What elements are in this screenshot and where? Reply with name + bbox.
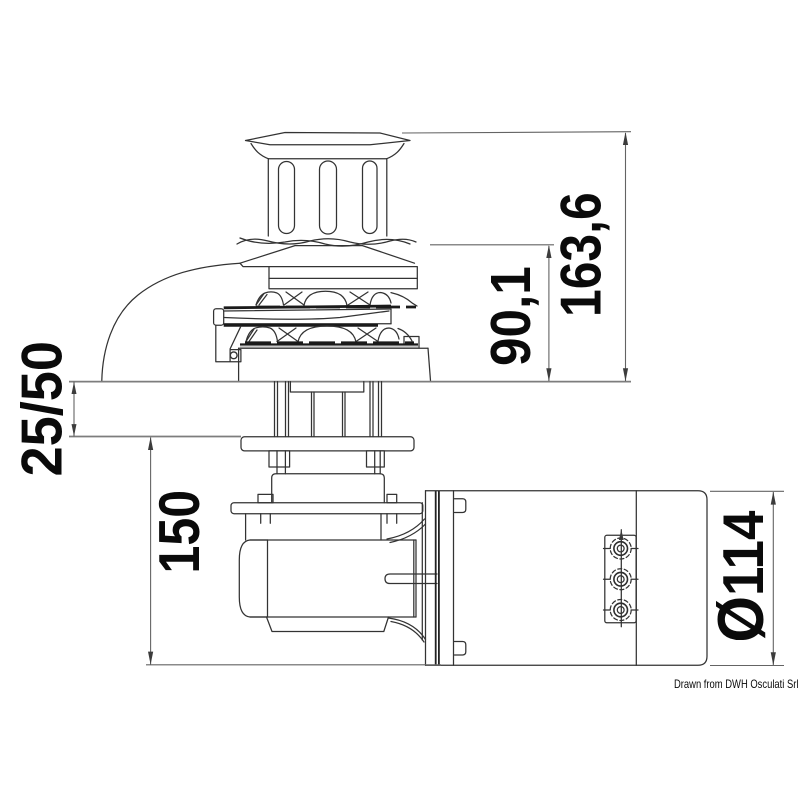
svg-text:25/50: 25/50	[9, 341, 74, 476]
svg-text:Drawn from DWH Osculati Srl: Drawn from DWH Osculati Srl	[674, 678, 799, 691]
svg-text:90,1: 90,1	[480, 266, 543, 366]
svg-text:Ø114: Ø114	[705, 510, 778, 642]
svg-text:150: 150	[148, 490, 212, 574]
svg-text:163,6: 163,6	[549, 192, 613, 317]
